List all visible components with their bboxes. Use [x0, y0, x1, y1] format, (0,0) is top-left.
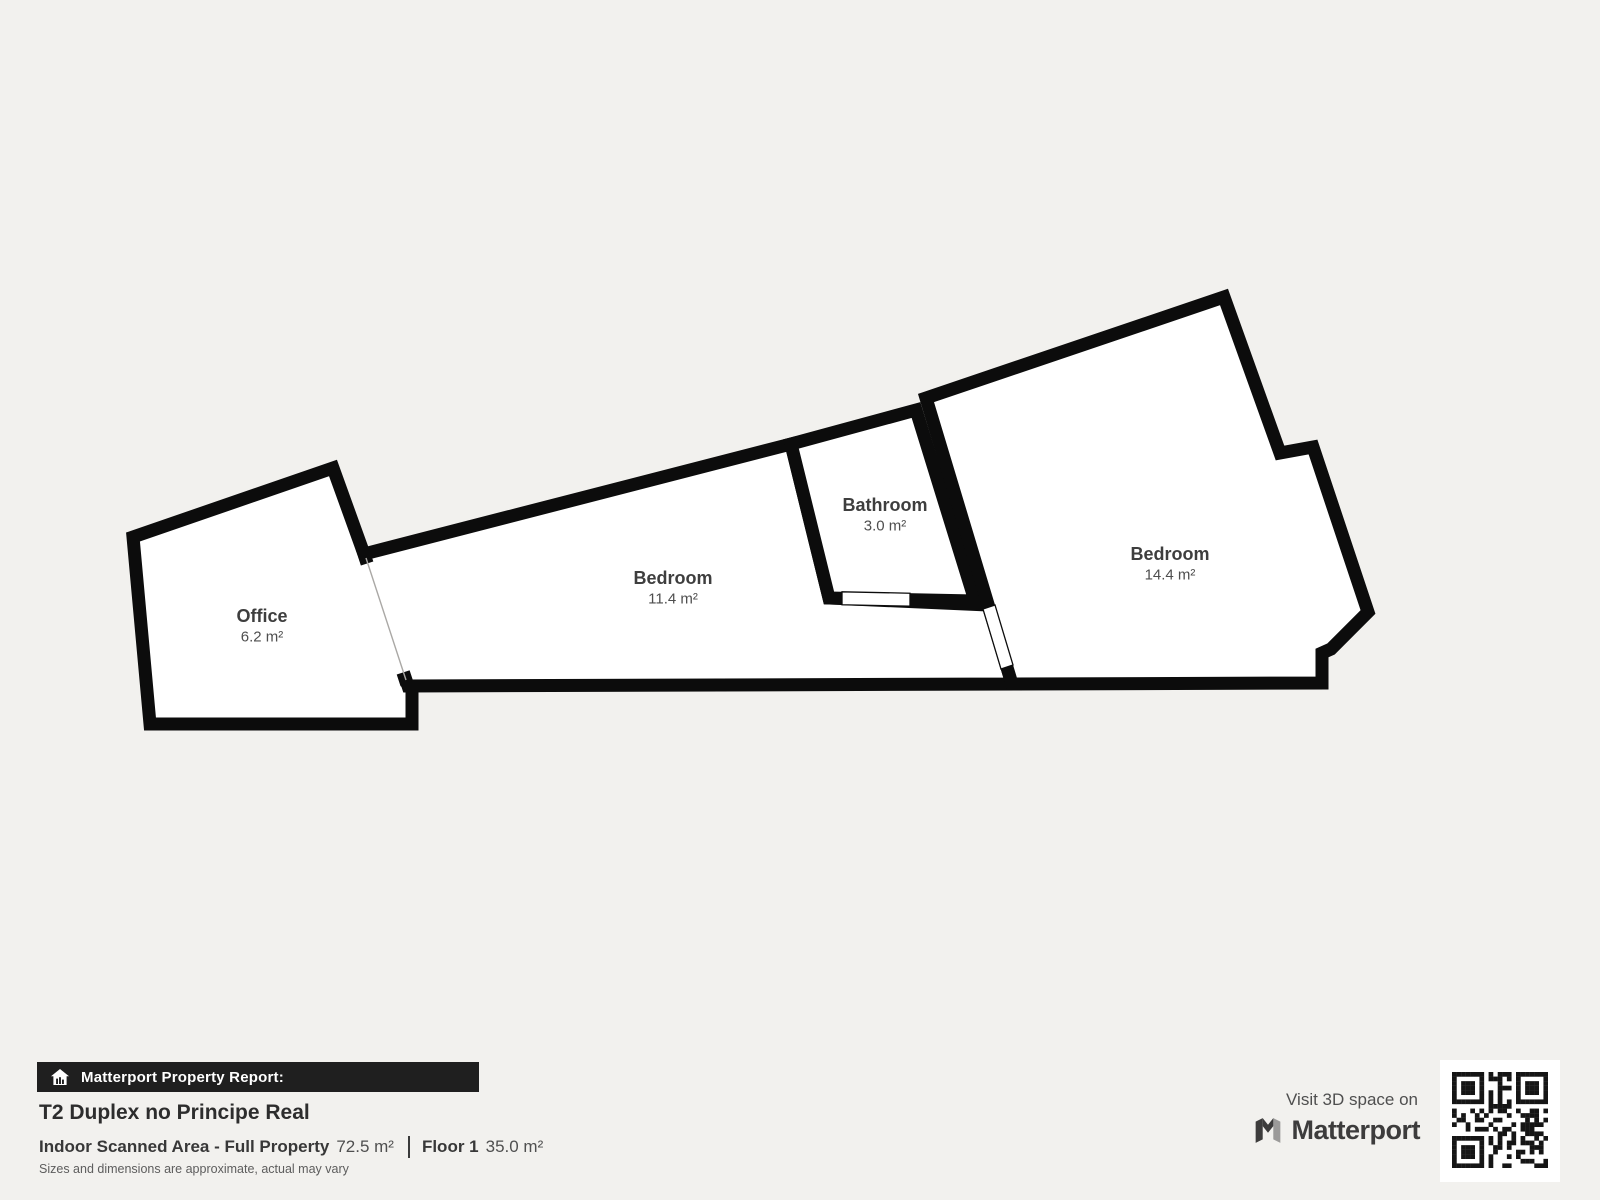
- room-area-2: 3.0 m²: [864, 518, 907, 535]
- info-divider: [408, 1136, 410, 1158]
- matterport-wordmark: Matterport: [1292, 1115, 1421, 1146]
- floorplan: Office6.2 m²Bedroom11.4 m²Bathroom3.0 m²…: [0, 0, 1600, 1200]
- room-label-0: Office: [236, 606, 287, 626]
- cta-block: Visit 3D space on Matterport: [1253, 1090, 1421, 1146]
- qr-code: [1440, 1060, 1560, 1182]
- report-info-row: Indoor Scanned Area - Full Property 72.5…: [39, 1136, 543, 1158]
- scanned-area-value: 72.5 m²: [336, 1137, 394, 1157]
- room-label-3: Bedroom: [1130, 544, 1209, 564]
- disclaimer-text: Sizes and dimensions are approximate, ac…: [39, 1162, 349, 1176]
- floor-value: 35.0 m²: [486, 1137, 544, 1157]
- room-area-1: 11.4 m²: [648, 591, 698, 608]
- report-banner-label: Matterport Property Report:: [81, 1069, 284, 1086]
- house-report-icon: [50, 1068, 70, 1086]
- room-area-0: 6.2 m²: [241, 629, 284, 646]
- qr-pattern: [1452, 1072, 1548, 1168]
- visit-3d-text: Visit 3D space on: [1253, 1090, 1421, 1110]
- room-label-2: Bathroom: [843, 495, 928, 515]
- room-area-3: 14.4 m²: [1145, 567, 1196, 584]
- property-title: T2 Duplex no Principe Real: [39, 1101, 310, 1125]
- matterport-m-icon: [1253, 1115, 1283, 1146]
- door-opening-0: [842, 592, 910, 606]
- matterport-logo[interactable]: Matterport: [1253, 1115, 1421, 1146]
- room-label-1: Bedroom: [633, 568, 712, 588]
- report-banner: Matterport Property Report:: [37, 1062, 479, 1092]
- floor-label: Floor 1: [422, 1137, 479, 1157]
- scanned-area-label: Indoor Scanned Area - Full Property: [39, 1137, 329, 1157]
